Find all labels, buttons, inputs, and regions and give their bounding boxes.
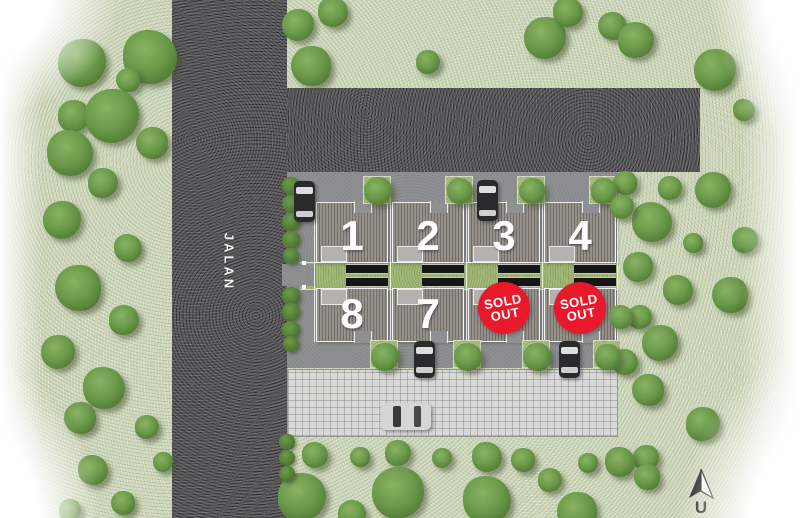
car-window [296, 211, 313, 217]
hedge-tree [283, 248, 299, 264]
car-window [393, 406, 401, 427]
north-label: U [695, 498, 707, 518]
tree [47, 130, 93, 176]
tree [116, 68, 140, 92]
tree [642, 325, 678, 361]
tree [454, 343, 482, 371]
tree [538, 468, 562, 492]
unit-number: 7 [416, 293, 439, 335]
tree [59, 499, 81, 518]
car-window [479, 210, 496, 216]
tree [111, 491, 135, 515]
tree [519, 178, 545, 204]
car-window [296, 187, 313, 194]
unit-number: 4 [568, 215, 591, 257]
car-window [561, 347, 578, 354]
plot-boundary-line [542, 202, 543, 342]
tree [318, 0, 348, 27]
unit-driveway [574, 264, 616, 274]
car-window [479, 186, 496, 193]
car-window [416, 347, 433, 354]
gate-post [302, 285, 306, 289]
tree [463, 476, 511, 518]
tree [610, 195, 634, 219]
car [559, 341, 580, 378]
tree [609, 305, 633, 329]
tree [83, 367, 125, 409]
sold-out-text: OUT [490, 305, 521, 323]
tree [432, 448, 452, 468]
tree [694, 49, 736, 91]
plot-boundary-line [390, 202, 391, 342]
tree [634, 464, 660, 490]
unit-driveway [422, 277, 464, 287]
sold-out-text: OUT [566, 305, 597, 323]
tree [695, 172, 731, 208]
complex-entrance [282, 264, 316, 286]
tree [683, 233, 703, 253]
tree [291, 46, 331, 86]
tree [41, 335, 75, 369]
tree [557, 492, 597, 518]
car-window [416, 367, 433, 373]
car [294, 181, 315, 222]
tree [372, 467, 424, 518]
tree [447, 178, 473, 204]
car [477, 180, 498, 221]
tree [511, 448, 535, 472]
tree [623, 252, 653, 282]
tree [282, 9, 314, 41]
unit-number: 1 [340, 215, 363, 257]
tree [136, 127, 168, 159]
car [381, 403, 431, 430]
car-window [414, 406, 421, 427]
gate-post [302, 261, 306, 265]
tree [85, 89, 139, 143]
tree [578, 453, 598, 473]
car-window [561, 367, 578, 373]
tree [55, 265, 101, 311]
tree [618, 22, 654, 58]
unit-number: 3 [492, 215, 515, 257]
tree [686, 407, 720, 441]
unit-number: 8 [340, 293, 363, 335]
tree [350, 447, 370, 467]
tree [472, 442, 502, 472]
tree [732, 227, 758, 253]
car [414, 341, 435, 378]
tree [153, 452, 173, 472]
tree [338, 500, 366, 518]
hedge-tree [283, 336, 299, 352]
tree [43, 201, 81, 239]
tree [632, 202, 672, 242]
unit-driveway [498, 264, 540, 274]
hedge-tree [279, 450, 295, 466]
tree [385, 440, 411, 466]
tree [302, 442, 328, 468]
tree [58, 39, 106, 87]
tree [78, 455, 108, 485]
site-plan: JALAN 123487SOLDOUTSOLDOUT U [0, 0, 804, 518]
plot-boundary-line [466, 202, 467, 342]
hedge-tree [279, 434, 295, 450]
tree [135, 415, 159, 439]
unit-driveway [346, 264, 388, 274]
tree [88, 168, 118, 198]
unit-number: 2 [416, 215, 439, 257]
tree [658, 176, 682, 200]
tree [663, 275, 693, 305]
tree [523, 343, 551, 371]
tree [605, 447, 635, 477]
tree [64, 402, 96, 434]
unit-driveway [346, 277, 388, 287]
tree [733, 99, 755, 121]
paver-court [287, 369, 618, 437]
north-arrow-icon [682, 468, 720, 502]
unit-driveway [422, 264, 464, 274]
tree [712, 277, 748, 313]
road-horizontal [287, 88, 700, 172]
tree [416, 50, 440, 74]
tree [632, 374, 664, 406]
tree [114, 234, 142, 262]
plot-boundary-line [314, 202, 315, 342]
tree [553, 0, 583, 27]
tree [109, 305, 139, 335]
road-label: JALAN [222, 233, 237, 291]
